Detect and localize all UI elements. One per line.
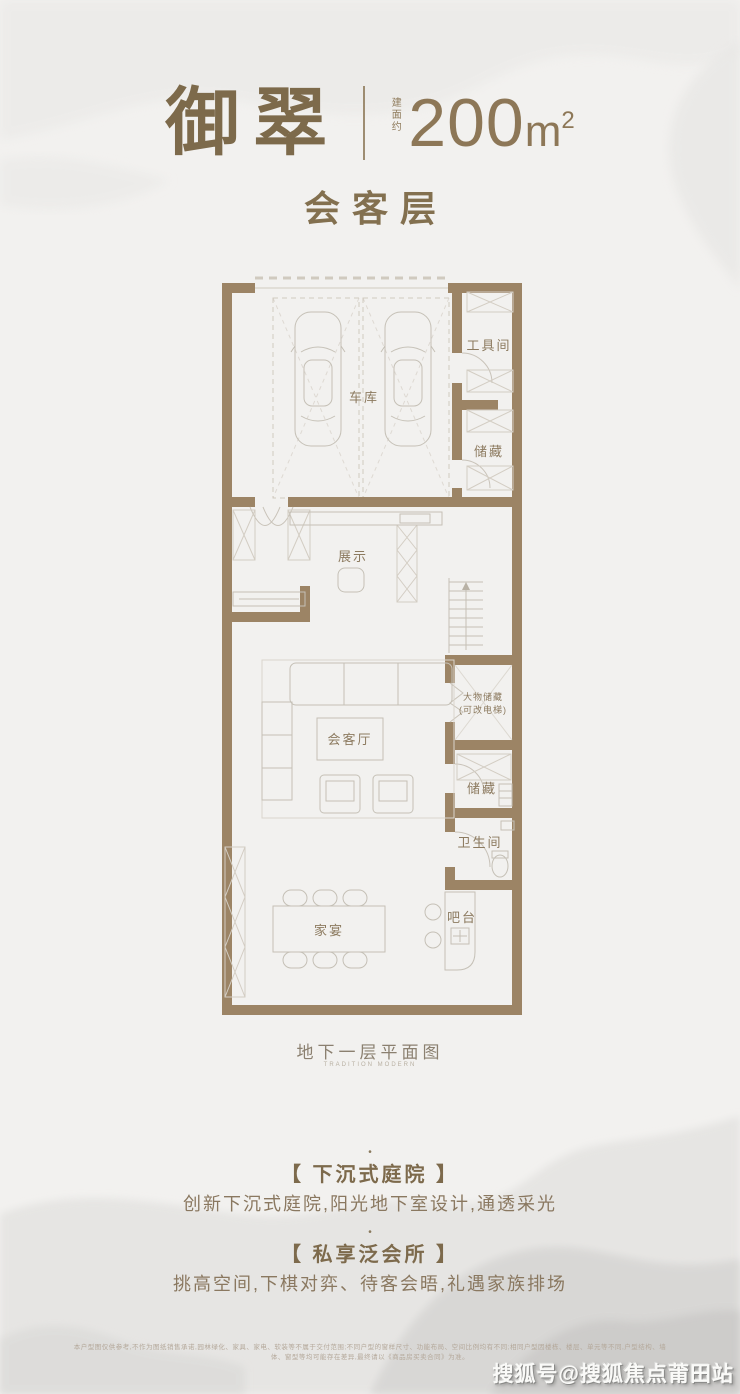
area-badge: 建面约 200m2 xyxy=(387,89,574,157)
project-name: 御翠 xyxy=(165,86,341,160)
car-left xyxy=(291,312,345,446)
watermark: 搜狐号@搜狐焦点莆田站 xyxy=(493,1358,734,1388)
stairs xyxy=(449,578,483,653)
room-label-display: 展示 xyxy=(338,549,368,564)
feature-desc: 创新下沉式庭院,阳光地下室设计,通透采光 xyxy=(0,1190,740,1218)
room-label-tool-room: 工具间 xyxy=(466,338,511,353)
room-label-large-storage-note: (可改电梯) xyxy=(459,704,507,715)
header: 御翠 建面约 200m2 xyxy=(0,86,740,160)
toilet xyxy=(492,851,508,877)
feature-bullet: • xyxy=(0,1146,740,1160)
feature-desc: 挑高空间,下棋对弈、待客会晤,礼遇家族排场 xyxy=(0,1270,740,1298)
car-right xyxy=(381,312,435,446)
room-label-reception: 会客厅 xyxy=(327,732,372,747)
area-value: 200m2 xyxy=(408,89,574,157)
feature-bullet: • xyxy=(0,1226,740,1240)
feature-item: • 【 下沉式庭院 】 创新下沉式庭院,阳光地下室设计,通透采光 xyxy=(0,1146,740,1218)
plan-caption: 地下一层平面图 xyxy=(0,1038,740,1063)
floor-plan: 工具间 车库 储藏 展示 大物储藏 (可改电梯) 会客厅 储藏 卫生间 家宴 吧… xyxy=(205,270,535,1020)
room-label-garage: 车库 xyxy=(349,390,379,405)
feature-title: 【 私享泛会所 】 xyxy=(0,1240,740,1270)
room-labels: 工具间 车库 储藏 展示 大物储藏 (可改电梯) 会客厅 储藏 卫生间 家宴 吧… xyxy=(314,338,512,938)
feature-title: 【 下沉式庭院 】 xyxy=(0,1160,740,1190)
area-label: 建面约 xyxy=(387,97,402,149)
plan-caption-subtitle: TRADITION MODERN xyxy=(0,1062,740,1068)
furniture xyxy=(233,312,514,970)
garage-dashed-lines xyxy=(255,278,449,498)
room-label-family-dining: 家宴 xyxy=(314,923,344,938)
room-label-storage-lower: 储藏 xyxy=(467,781,497,796)
room-label-storage-upper: 储藏 xyxy=(474,444,504,459)
room-label-large-storage: 大物储藏 xyxy=(463,691,503,702)
feature-item: • 【 私享泛会所 】 挑高空间,下棋对弈、待客会晤,礼遇家族排场 xyxy=(0,1226,740,1298)
room-label-bar: 吧台 xyxy=(447,910,477,925)
header-divider xyxy=(363,86,365,160)
floor-title: 会客层 xyxy=(0,180,740,232)
features: • 【 下沉式庭院 】 创新下沉式庭院,阳光地下室设计,通透采光 • 【 私享泛… xyxy=(0,1146,740,1306)
room-label-bathroom: 卫生间 xyxy=(457,835,502,850)
